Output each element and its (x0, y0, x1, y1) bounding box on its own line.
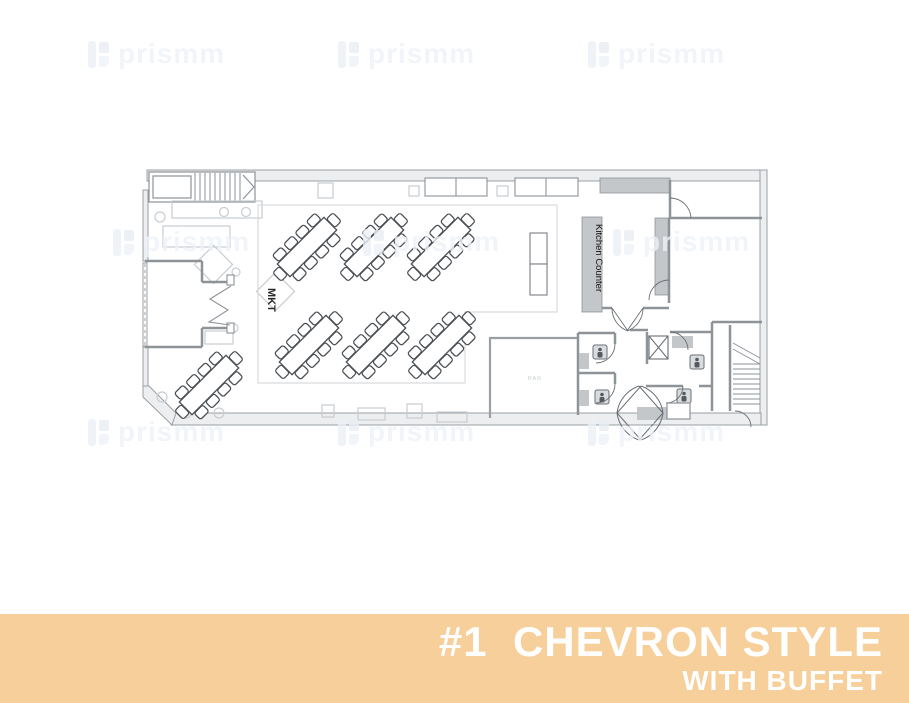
bar-label: BAR (528, 376, 542, 382)
column-circle (220, 208, 229, 217)
staircase-top-left (149, 172, 255, 202)
column-circle (155, 212, 165, 222)
stair-break-line (733, 343, 760, 358)
title-banner: #1 CHEVRON STYLE WITH BUFFET (0, 614, 909, 703)
toilet-icon (690, 355, 704, 369)
floorplan: MKT Kitchen Counter BAR (143, 168, 768, 453)
kitchen-counter-label: Kitchen Counter (593, 224, 604, 292)
prismm-logo-icon (588, 41, 609, 68)
watermark-text: prismm (618, 40, 725, 68)
wall-corner-angled (143, 386, 176, 425)
plumbing-wall (579, 353, 589, 369)
floorplan-svg: MKT Kitchen Counter BAR (143, 168, 768, 453)
watermark: prismm (588, 40, 725, 68)
console-table (163, 226, 230, 247)
layout-subtitle: WITH BUFFET (682, 666, 883, 697)
stair-break-line (733, 349, 760, 364)
plumbing-wall (579, 390, 589, 406)
wall-box (409, 186, 419, 196)
toilet-icon (593, 345, 607, 359)
service-counter (672, 336, 693, 348)
wall-box (318, 183, 333, 198)
layout-title: #1 CHEVRON STYLE (439, 621, 883, 663)
wall-left-lower (143, 347, 148, 386)
watermark: prismm (88, 40, 225, 68)
accordion-door (209, 286, 231, 325)
wall-left-upper (143, 190, 148, 261)
buffet-table (530, 233, 547, 295)
column-circle (242, 208, 251, 217)
counter-top (600, 178, 670, 193)
tables-layer (166, 204, 485, 428)
vestibule (145, 261, 234, 347)
elevator (647, 332, 693, 364)
bar-room: BAR (490, 338, 578, 418)
wall-box (497, 186, 508, 196)
watermark: prismm (338, 40, 475, 68)
fixture (667, 403, 690, 419)
prismm-logo-icon (88, 41, 109, 68)
dining-table (264, 204, 350, 290)
dining-table (333, 302, 419, 388)
door-swing-arc (670, 198, 691, 218)
prismm-logo-icon (88, 419, 109, 446)
prismm-logo-icon (113, 229, 134, 256)
prismm-logo-icon (338, 41, 359, 68)
door-jamb (227, 275, 234, 285)
left-alcove-wall (143, 263, 147, 346)
dining-table (266, 302, 352, 388)
dining-table (398, 204, 484, 290)
toilet-icon (677, 389, 691, 403)
dining-table (331, 204, 417, 290)
market-label: MKT (265, 288, 277, 312)
interior-walls-right (602, 180, 762, 411)
wall-right (760, 170, 767, 425)
kitchen-double-door (612, 308, 643, 331)
dining-table (399, 302, 485, 388)
watermark-text: prismm (368, 40, 475, 68)
watermark-text: prismm (118, 40, 225, 68)
